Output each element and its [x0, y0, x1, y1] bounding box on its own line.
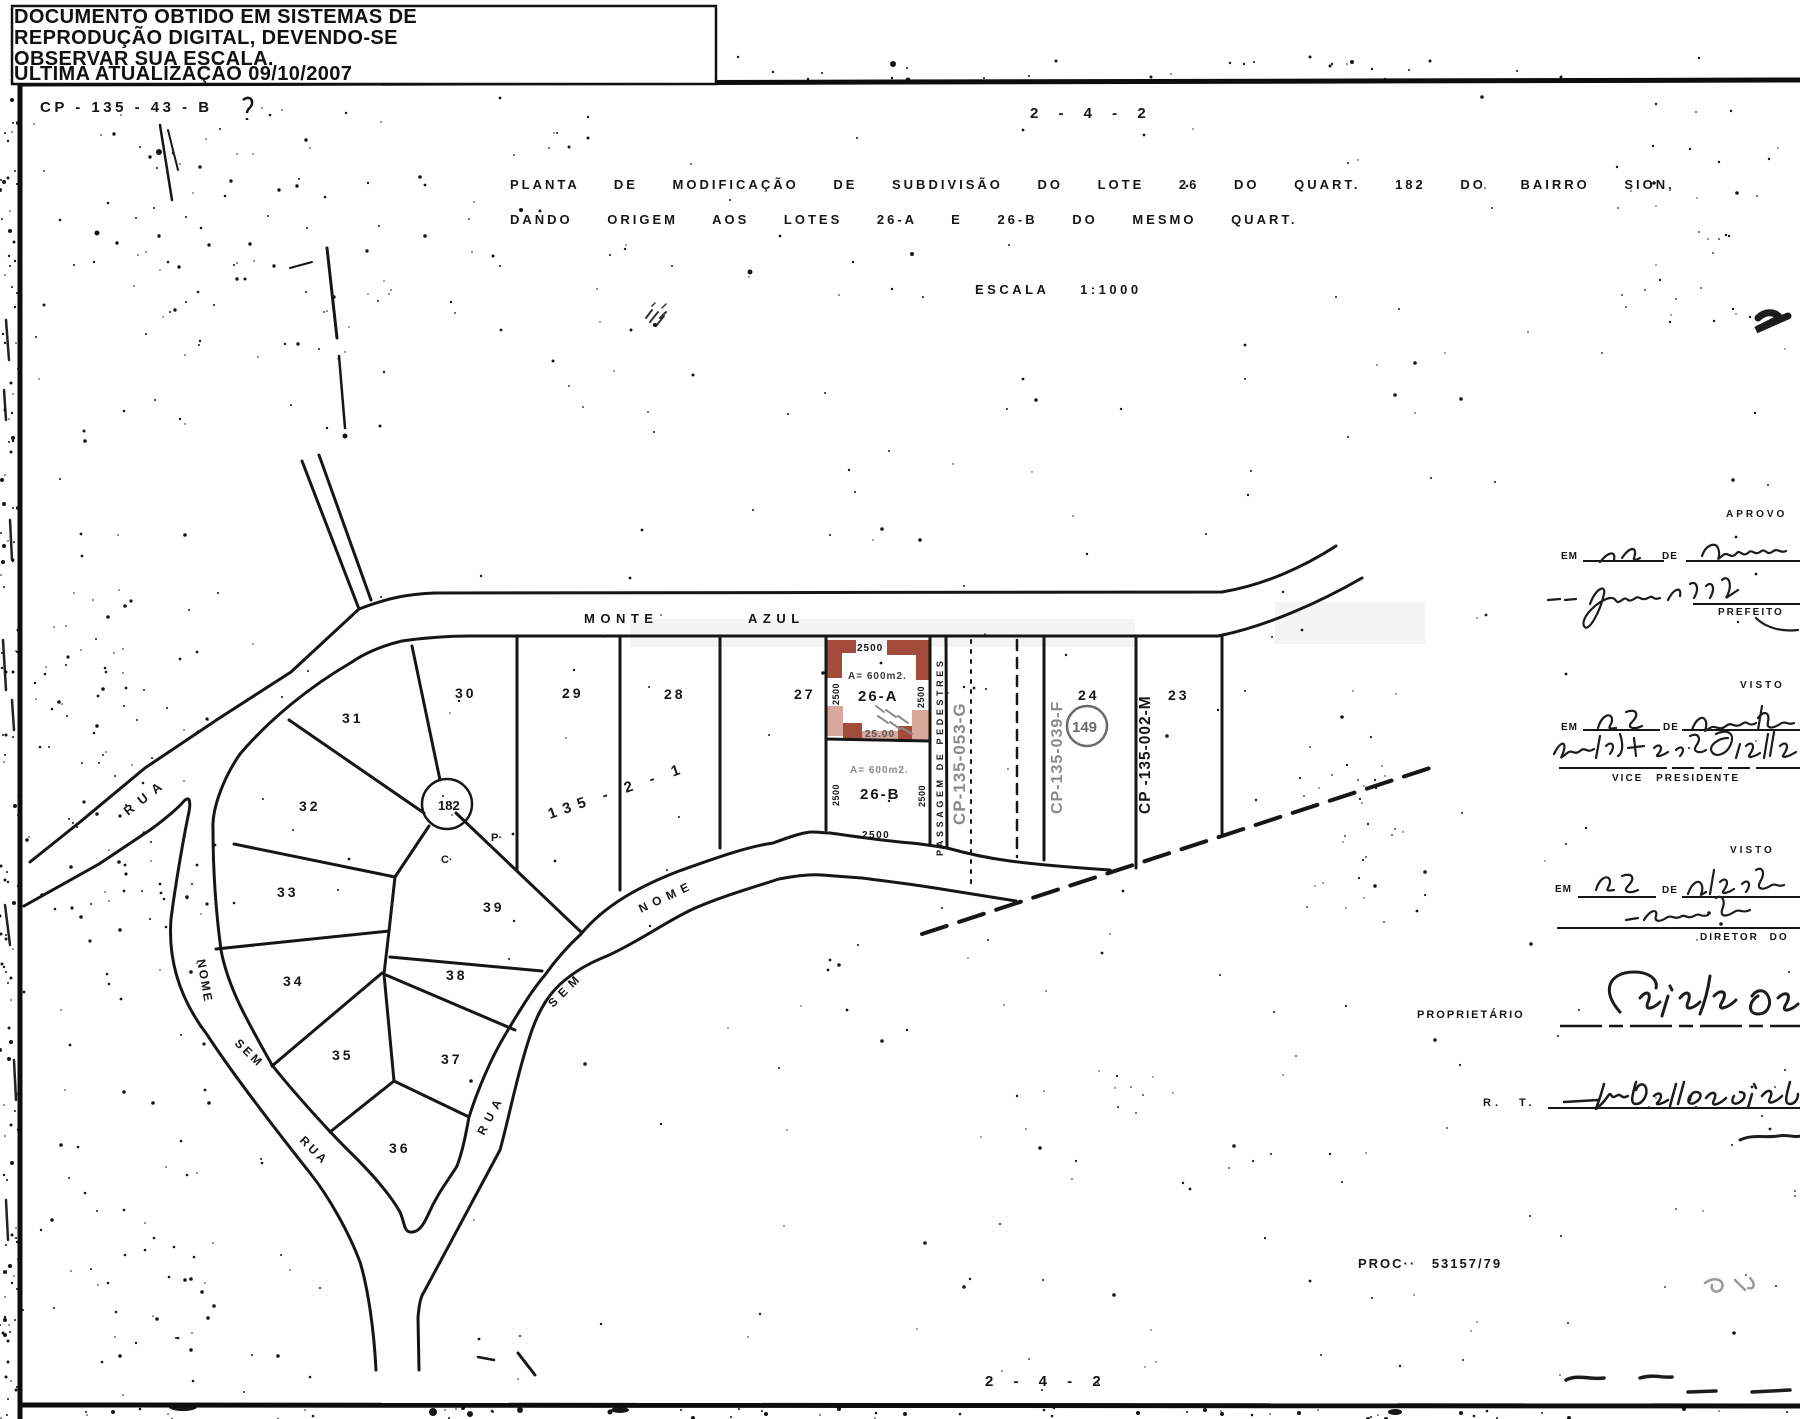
svg-text:31: 31: [342, 710, 364, 726]
svg-text:ESCALA 1:1000: ESCALA 1:1000: [975, 282, 1142, 297]
svg-text:ÚLTIMA ATUALIZAÇÃO 09/10/2007: ÚLTIMA ATUALIZAÇÃO 09/10/2007: [14, 61, 352, 85]
svg-text:DOCUMENTO OBTIDO EM SISTEMAS D: DOCUMENTO OBTIDO EM SISTEMAS DE: [14, 6, 417, 28]
svg-text:149: 149: [1072, 719, 1097, 736]
svg-text:2500: 2500: [857, 643, 883, 654]
svg-text:AZUL: AZUL: [748, 611, 805, 626]
svg-text:27: 27: [794, 686, 816, 702]
svg-text:2500: 2500: [831, 683, 841, 705]
svg-text:28: 28: [664, 686, 686, 702]
svg-text:30: 30: [455, 685, 477, 701]
svg-text:DIRETOR DO: DIRETOR DO: [1700, 932, 1789, 943]
svg-text:EM: EM: [1555, 884, 1572, 895]
svg-text:32: 32: [299, 798, 321, 814]
svg-text:23: 23: [1168, 687, 1190, 703]
svg-text:CP -135-002-M: CP -135-002-M: [1137, 695, 1154, 814]
svg-text:DANDO ORIGEM AOS LOTES 26-A E: DANDO ORIGEM AOS LOTES 26-A E 26-B DO ME…: [510, 212, 1297, 227]
svg-text:38: 38: [446, 967, 468, 983]
svg-text:34: 34: [283, 973, 305, 989]
svg-text:29: 29: [562, 685, 584, 701]
svg-text:CP-135-053-G: CP-135-053-G: [950, 702, 969, 825]
svg-text:VISTO: VISTO: [1740, 680, 1785, 691]
svg-text:EM: EM: [1561, 722, 1578, 733]
svg-text:2500: 2500: [916, 686, 926, 708]
svg-text:33: 33: [277, 884, 299, 900]
svg-text:PASSAGEM DE PEDESTRES: PASSAGEM DE PEDESTRES: [935, 658, 945, 856]
svg-text:36: 36: [389, 1140, 411, 1156]
svg-text:R. T.: R. T.: [1483, 1097, 1536, 1109]
svg-text:DE: DE: [1662, 551, 1678, 562]
svg-text:P·: P·: [491, 832, 502, 844]
svg-text:REPRODUÇÃO DIGITAL, DEVENDO-SE: REPRODUÇÃO DIGITAL, DEVENDO-SE: [14, 26, 398, 49]
svg-text:VISTO: VISTO: [1730, 845, 1775, 856]
svg-text:182: 182: [438, 798, 460, 813]
svg-text:2500: 2500: [831, 784, 841, 806]
svg-text:A= 600m2.: A= 600m2.: [850, 765, 909, 776]
svg-text:35: 35: [332, 1047, 354, 1063]
svg-text:2 - 4 - 2: 2 - 4 - 2: [1030, 105, 1154, 122]
svg-text:26-B: 26-B: [860, 786, 901, 803]
svg-text:39: 39: [483, 899, 505, 915]
svg-text:24: 24: [1078, 687, 1100, 703]
svg-text:CP - 135 - 43 - B: CP - 135 - 43 - B: [40, 99, 213, 116]
svg-text:DE: DE: [1663, 722, 1679, 733]
svg-text:26-A: 26-A: [858, 688, 899, 705]
svg-text:MONTE: MONTE: [584, 611, 658, 626]
svg-text:25.00: 25.00: [865, 729, 895, 740]
svg-text:PLANTA DE MODIFICAÇÃO DE SUBDI: PLANTA DE MODIFICAÇÃO DE SUBDIVISÃO DO L…: [510, 177, 1675, 192]
svg-text:PROPRIETÁRIO: PROPRIETÁRIO: [1417, 1008, 1525, 1021]
svg-text:37: 37: [441, 1051, 463, 1067]
svg-text:C·: C·: [441, 854, 453, 866]
svg-text:DE: DE: [1662, 885, 1678, 896]
svg-text:2500: 2500: [862, 830, 890, 841]
svg-text:2500: 2500: [917, 785, 927, 807]
svg-text:2 - 4 - 2: 2 - 4 - 2: [985, 1373, 1109, 1390]
svg-text:PROC·· 53157/79: PROC·· 53157/79: [1358, 1256, 1502, 1271]
svg-text:A= 600m2.: A= 600m2.: [848, 671, 907, 682]
svg-text:PREFEITO: PREFEITO: [1718, 607, 1784, 618]
svg-text:EM: EM: [1561, 551, 1578, 562]
svg-text:APROVO: APROVO: [1726, 509, 1787, 520]
svg-text:CP-135-039-F: CP-135-039-F: [1049, 701, 1066, 814]
svg-text:VICE PRESIDENTE: VICE PRESIDENTE: [1612, 773, 1740, 784]
